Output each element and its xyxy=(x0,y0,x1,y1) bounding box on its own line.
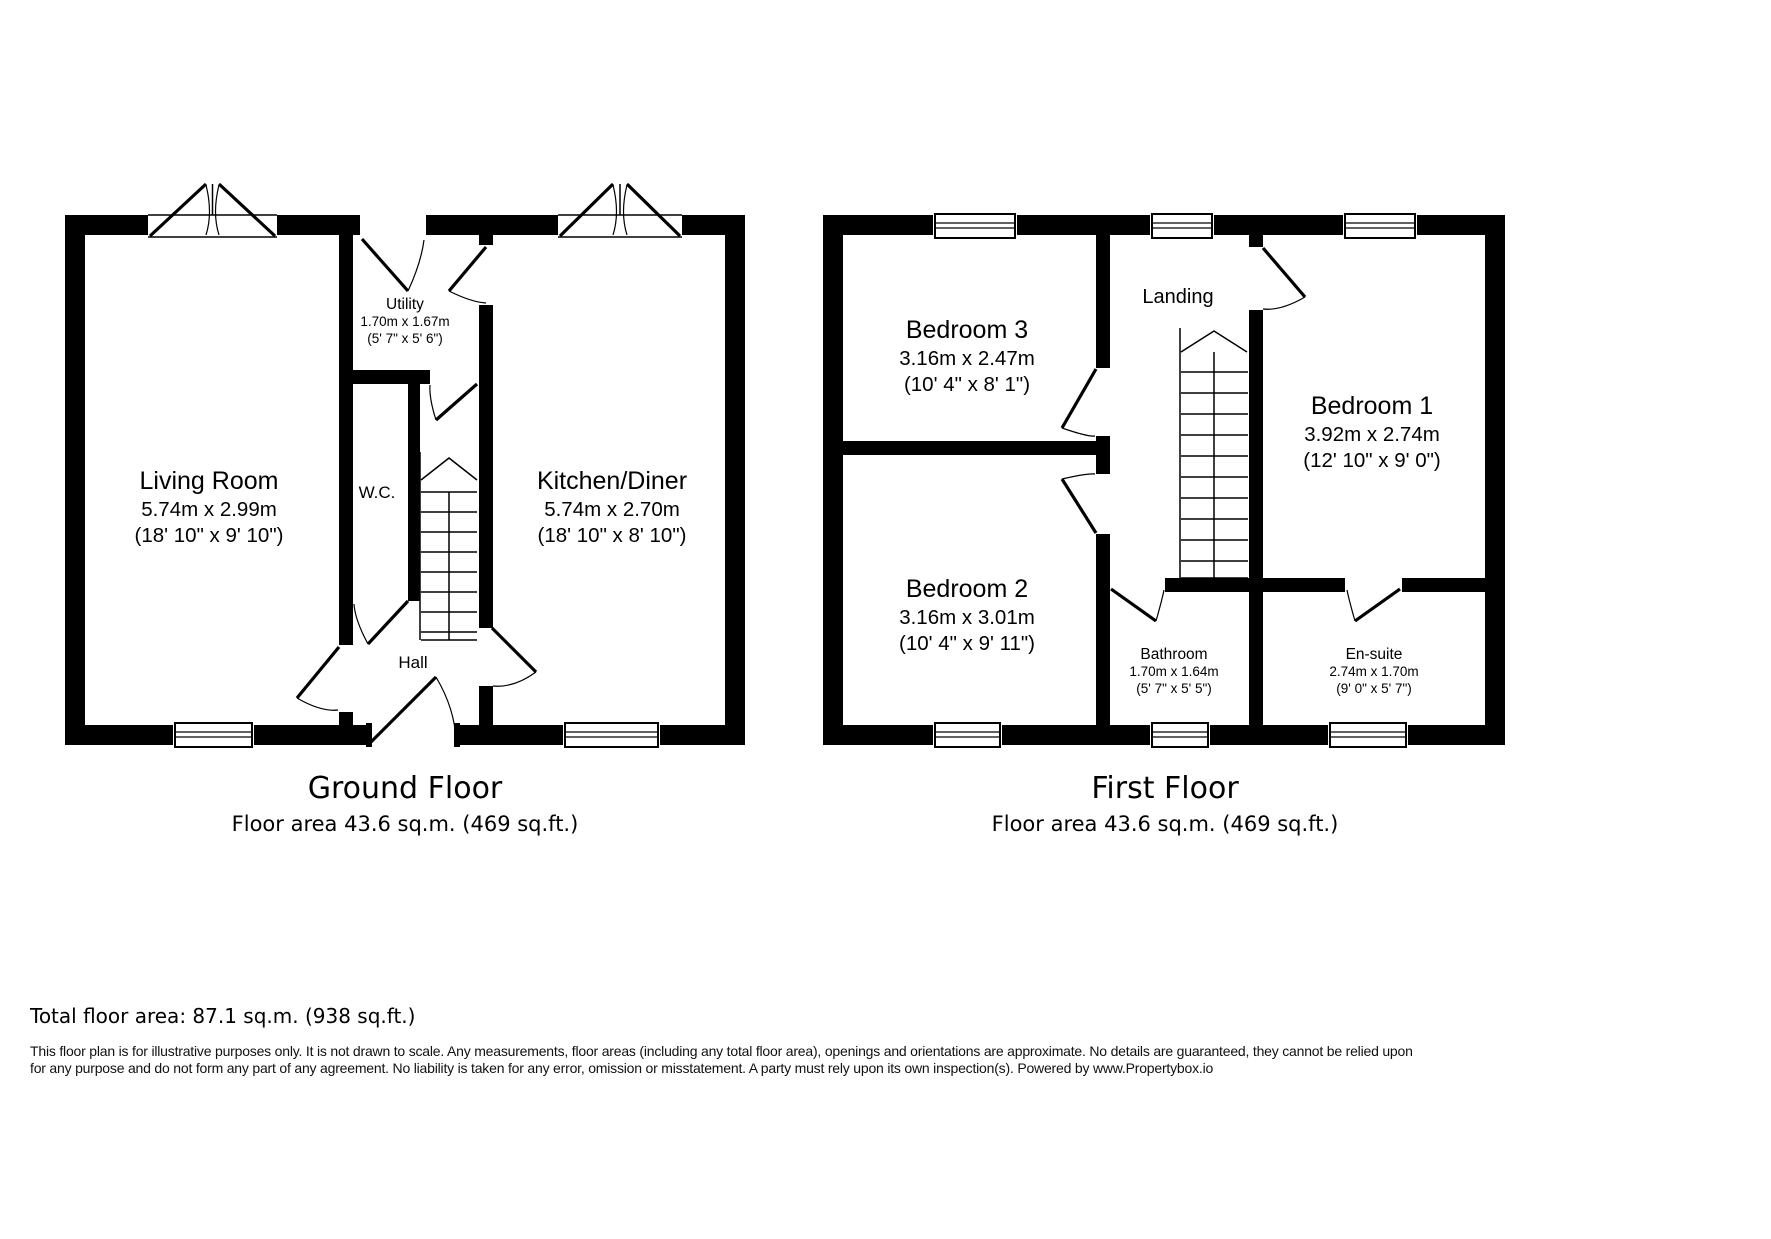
door-icon xyxy=(354,601,408,644)
ground-floor-area-caption: Floor area 43.6 sq.m. (469 sq.ft.) xyxy=(232,812,579,836)
room-dims-metric: 3.16m x 2.47m xyxy=(899,347,1035,370)
room-dims-metric: 1.70m x 1.64m xyxy=(1129,664,1218,679)
wall-ensuite-top-left xyxy=(1263,578,1345,592)
room-kitchen-diner: Kitchen/Diner 5.74m x 2.70m (18' 10" x 8… xyxy=(537,467,687,547)
door-icon xyxy=(1263,248,1305,309)
wall-kitchen-divider xyxy=(479,305,493,628)
room-wc: W.C. xyxy=(359,483,396,502)
wall-kitchen-divider-bottom-stub xyxy=(479,686,493,725)
wall-bedroom3-bedroom2 xyxy=(843,441,1096,455)
room-bedroom-3: Bedroom 3 3.16m x 2.47m (10' 4" x 8' 1") xyxy=(899,316,1035,396)
disclaimer-line-1: This floor plan is for illustrative purp… xyxy=(30,1043,1413,1059)
room-dims-imperial: (9' 0" x 5' 7") xyxy=(1336,681,1412,696)
room-bathroom: Bathroom 1.70m x 1.64m (5' 7" x 5' 5") xyxy=(1129,646,1218,696)
room-dims-metric: 3.92m x 2.74m xyxy=(1304,423,1440,446)
window-icon xyxy=(1152,723,1208,747)
wall-bedrooms-divider-mid xyxy=(1096,436,1110,474)
window-icon xyxy=(935,723,1000,747)
wall-bedrooms-divider-top xyxy=(1096,235,1110,368)
room-dims-metric: 1.70m x 1.67m xyxy=(360,314,449,329)
wall-living-divider xyxy=(339,235,353,645)
wall-bedrooms-divider-bottom xyxy=(1096,534,1110,725)
ground-floor-title: Ground Floor xyxy=(308,771,503,806)
room-utility: Utility 1.70m x 1.67m (5' 7" x 5' 6") xyxy=(360,296,449,346)
opening-back-door xyxy=(360,214,426,238)
window-icon xyxy=(565,723,658,747)
room-label: Kitchen/Diner xyxy=(537,467,687,495)
room-label: En-suite xyxy=(1346,646,1403,663)
wall-living-divider-stub xyxy=(339,712,353,725)
total-floor-area: Total floor area: 87.1 sq.m. (938 sq.ft.… xyxy=(29,1004,415,1028)
window-icon xyxy=(1330,723,1406,747)
first-floor-plan: Bedroom 3 3.16m x 2.47m (10' 4" x 8' 1")… xyxy=(833,212,1495,836)
wall-stairs-bedroom1 xyxy=(1249,310,1263,725)
door-icon xyxy=(1062,474,1096,533)
door-icon xyxy=(1111,589,1164,621)
room-dims-imperial: (5' 7" x 5' 6") xyxy=(367,331,443,346)
door-icon xyxy=(297,647,339,710)
first-floor-title: First Floor xyxy=(1091,771,1239,806)
window-icon xyxy=(935,214,1015,238)
room-dims-metric: 5.74m x 2.70m xyxy=(544,498,680,521)
room-living-room: Living Room 5.74m x 2.99m (18' 10" x 9' … xyxy=(135,467,284,547)
room-dims-metric: 2.74m x 1.70m xyxy=(1329,664,1418,679)
room-dims-imperial: (18' 10" x 9' 10") xyxy=(135,524,284,547)
floorplan-page: Living Room 5.74m x 2.99m (18' 10" x 9' … xyxy=(0,0,1771,1239)
door-icon xyxy=(449,247,486,303)
room-dims-imperial: (12' 10" x 9' 0") xyxy=(1303,449,1440,472)
door-icon xyxy=(362,239,424,291)
disclaimer-line-2: for any purpose and do not form any part… xyxy=(30,1060,1213,1076)
stairs-icon xyxy=(1180,328,1248,585)
door-icon xyxy=(430,384,477,420)
room-label: Landing xyxy=(1142,286,1213,308)
room-bedroom-2: Bedroom 2 3.16m x 3.01m (10' 4" x 9' 11"… xyxy=(899,575,1035,655)
room-label: Bedroom 2 xyxy=(906,575,1028,603)
room-label: Living Room xyxy=(140,467,279,495)
room-dims-imperial: (5' 7" x 5' 5") xyxy=(1136,681,1212,696)
room-dims-metric: 3.16m x 3.01m xyxy=(899,606,1035,629)
first-floor-area-caption: Floor area 43.6 sq.m. (469 sq.ft.) xyxy=(992,812,1339,836)
floorplan-canvas: Living Room 5.74m x 2.99m (18' 10" x 9' … xyxy=(0,0,1771,1239)
room-label: Bedroom 1 xyxy=(1311,392,1433,420)
room-landing: Landing xyxy=(1142,286,1213,308)
wall-utility-bottom xyxy=(353,370,430,384)
ground-floor-plan: Living Room 5.74m x 2.99m (18' 10" x 9' … xyxy=(75,184,735,836)
room-hall: Hall xyxy=(398,653,427,672)
wall-ensuite-top-right xyxy=(1402,578,1495,592)
room-label: W.C. xyxy=(359,483,396,502)
wall-kitchen-divider-top-stub xyxy=(479,235,493,245)
room-dims-metric: 5.74m x 2.99m xyxy=(141,498,277,521)
room-label: Utility xyxy=(386,296,424,313)
room-label: Bedroom 3 xyxy=(906,316,1028,344)
room-label: Hall xyxy=(398,653,427,672)
opening-top-window-living xyxy=(148,213,277,239)
window-icon xyxy=(1345,214,1415,238)
stairs-icon xyxy=(420,452,477,640)
room-dims-imperial: (10' 4" x 8' 1") xyxy=(904,373,1030,396)
room-label: Bathroom xyxy=(1140,646,1207,663)
room-dims-imperial: (18' 10" x 8' 10") xyxy=(538,524,687,547)
wall-bathroom-top xyxy=(1165,578,1249,592)
window-icon xyxy=(175,723,252,747)
door-icon xyxy=(1347,589,1400,621)
room-bedroom-1: Bedroom 1 3.92m x 2.74m (12' 10" x 9' 0"… xyxy=(1303,392,1440,472)
summary-section: Total floor area: 87.1 sq.m. (938 sq.ft.… xyxy=(29,1004,1413,1076)
opening-top-window-kitchen xyxy=(558,213,682,239)
wall-bedroom1-top-stub xyxy=(1249,235,1263,247)
room-dims-imperial: (10' 4" x 9' 11") xyxy=(899,632,1035,655)
door-icon xyxy=(492,628,536,686)
door-icon xyxy=(1062,369,1096,436)
wall-wc-stairs-divider xyxy=(408,384,420,601)
window-icon xyxy=(1152,214,1212,238)
room-ensuite: En-suite 2.74m x 1.70m (9' 0" x 5' 7") xyxy=(1329,646,1418,696)
